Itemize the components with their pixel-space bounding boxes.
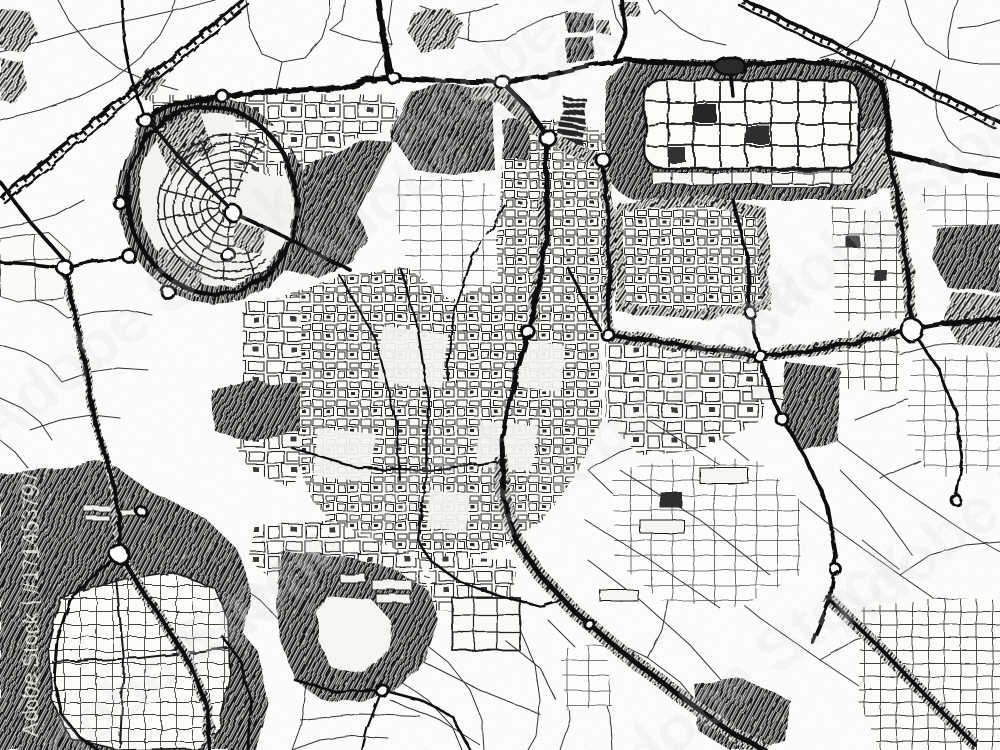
svg-text:Adobe Stock | #171453797: Adobe Stock | #171453797 bbox=[18, 472, 43, 737]
